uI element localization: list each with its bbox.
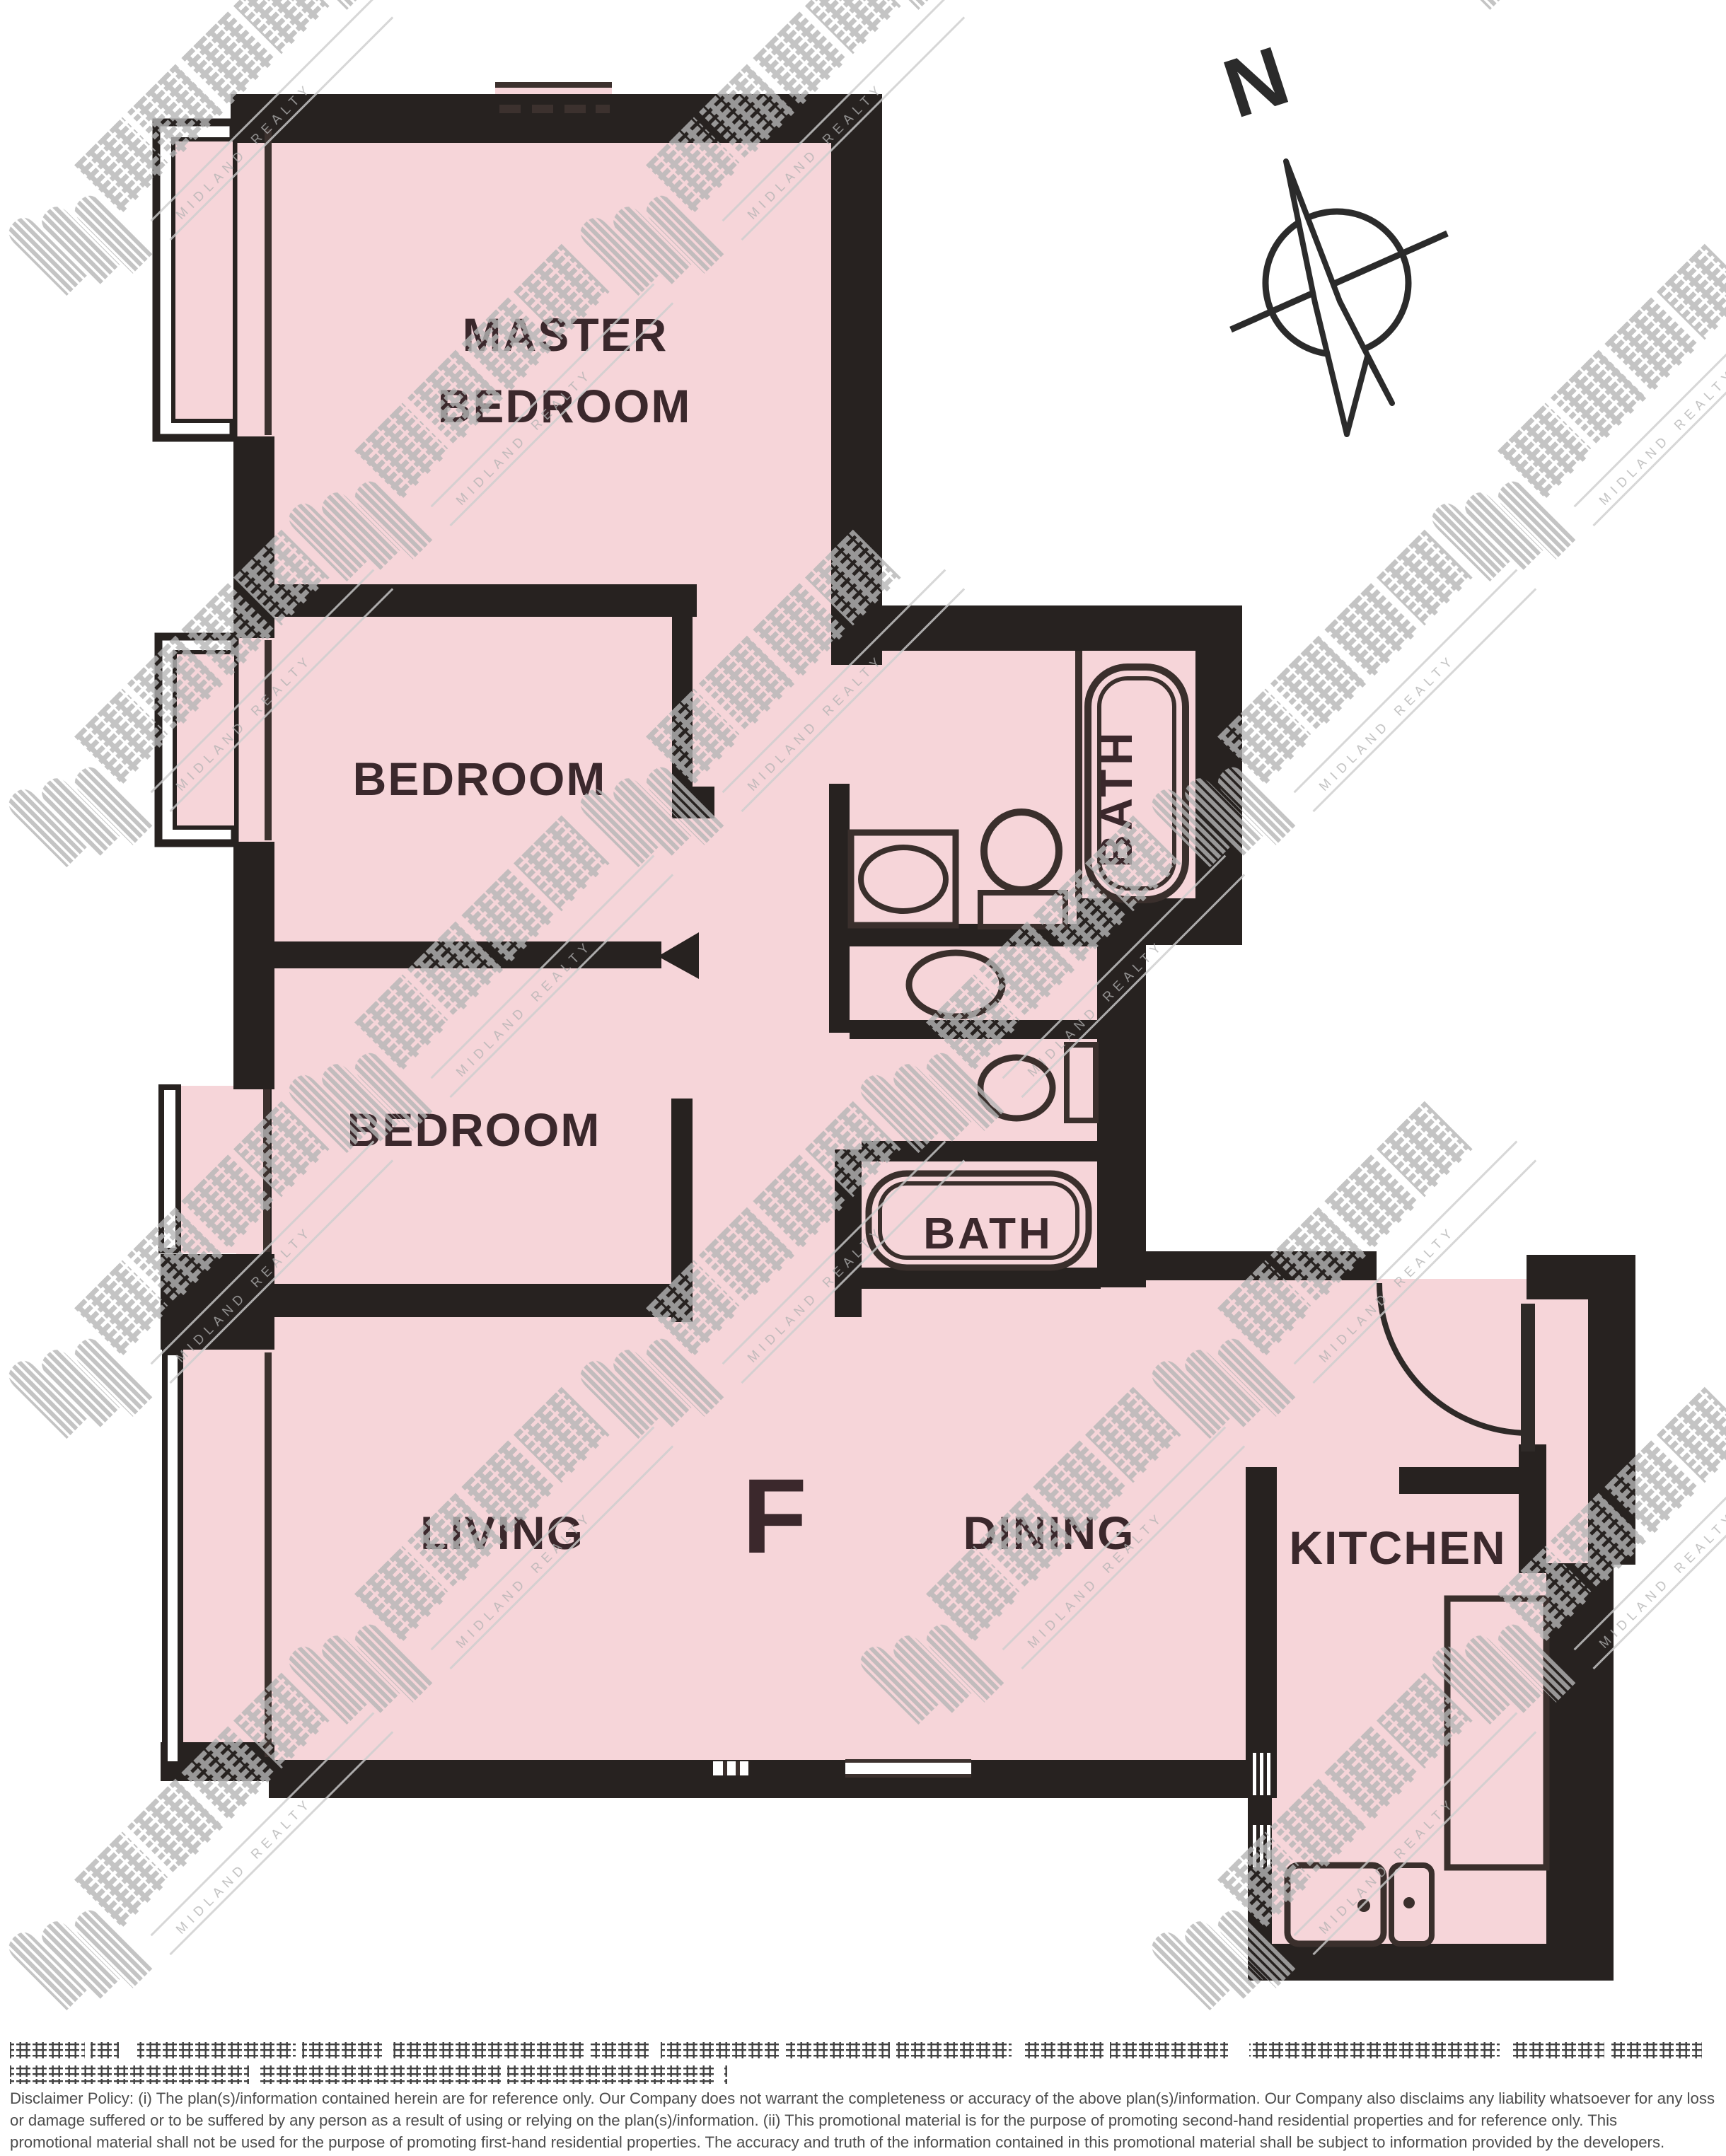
- svg-text:BEDROOM: BEDROOM: [353, 753, 607, 805]
- svg-text:F: F: [742, 1456, 807, 1575]
- svg-text:BATH: BATH: [923, 1210, 1053, 1258]
- svg-text:KITCHEN: KITCHEN: [1289, 1522, 1506, 1574]
- svg-text:N: N: [1213, 29, 1299, 137]
- svg-text:Disclaimer Policy: (i) The pla: Disclaimer Policy: (i) The plan(s)/infor…: [10, 2090, 1715, 2107]
- svg-text:promotional material shall not: promotional material shall not be used f…: [10, 2133, 1664, 2151]
- svg-text:or damage suffered or to be su: or damage suffered or to be suffered by …: [10, 2111, 1617, 2129]
